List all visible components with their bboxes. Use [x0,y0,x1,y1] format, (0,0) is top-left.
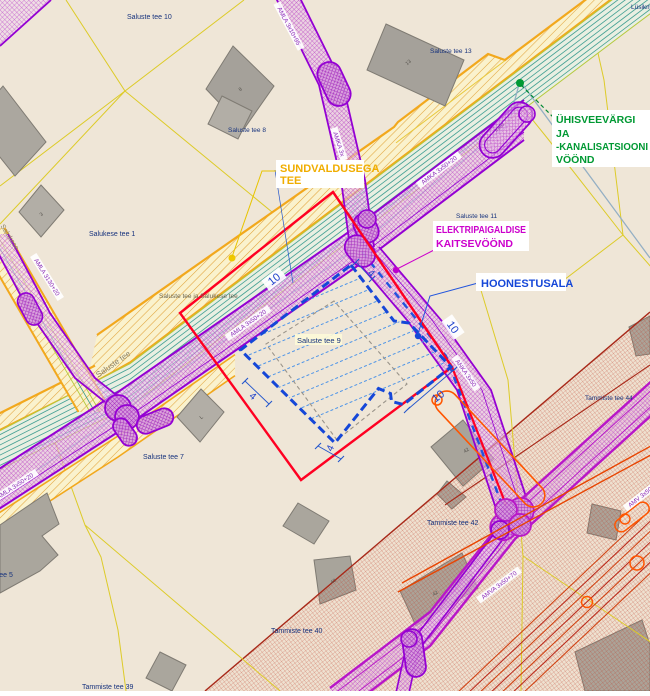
svg-text:Tammiste tee 39: Tammiste tee 39 [82,684,133,691]
svg-text:Saluste tee 5: Saluste tee 5 [0,572,13,579]
svg-text:Saluste tee 7: Saluste tee 7 [143,454,184,461]
svg-text:Saluste tee 13: Saluste tee 13 [430,48,472,55]
svg-text:ELEKTRIPAIGALDISE: ELEKTRIPAIGALDISE [436,224,526,236]
svg-text:Saluste tee 11: Saluste tee 11 [456,213,497,220]
svg-text:Lüsikm: Lüsikm [631,4,650,11]
svg-text:KAITSEVÖÖND: KAITSEVÖÖND [436,237,513,250]
svg-text:Tammiste tee 40: Tammiste tee 40 [271,628,322,635]
svg-text:SUNDVALDUSEGA: SUNDVALDUSEGA [280,163,379,175]
svg-text:JA: JA [556,128,570,140]
svg-text:HOONESTUSALA: HOONESTUSALA [481,278,573,290]
svg-text:-KANALISATSIOONI: -KANALISATSIOONI [556,141,648,153]
svg-text:Saluste tee ja Salukese tee: Saluste tee ja Salukese tee [159,293,238,300]
svg-text:Tammiste tee 44: Tammiste tee 44 [585,395,633,402]
svg-text:Tammiste tee 42: Tammiste tee 42 [427,520,478,527]
svg-text:ÜHISVEEVÄRGI: ÜHISVEEVÄRGI [556,113,635,126]
svg-text:Saluste tee 9: Saluste tee 9 [297,336,341,345]
svg-text:Saluste tee 10: Saluste tee 10 [127,14,172,21]
svg-text:VÖÖND: VÖÖND [556,153,595,166]
svg-text:Saluste tee 8: Saluste tee 8 [228,127,266,134]
svg-text:Salukese tee 1: Salukese tee 1 [89,231,135,238]
svg-text:TEE: TEE [280,175,301,187]
